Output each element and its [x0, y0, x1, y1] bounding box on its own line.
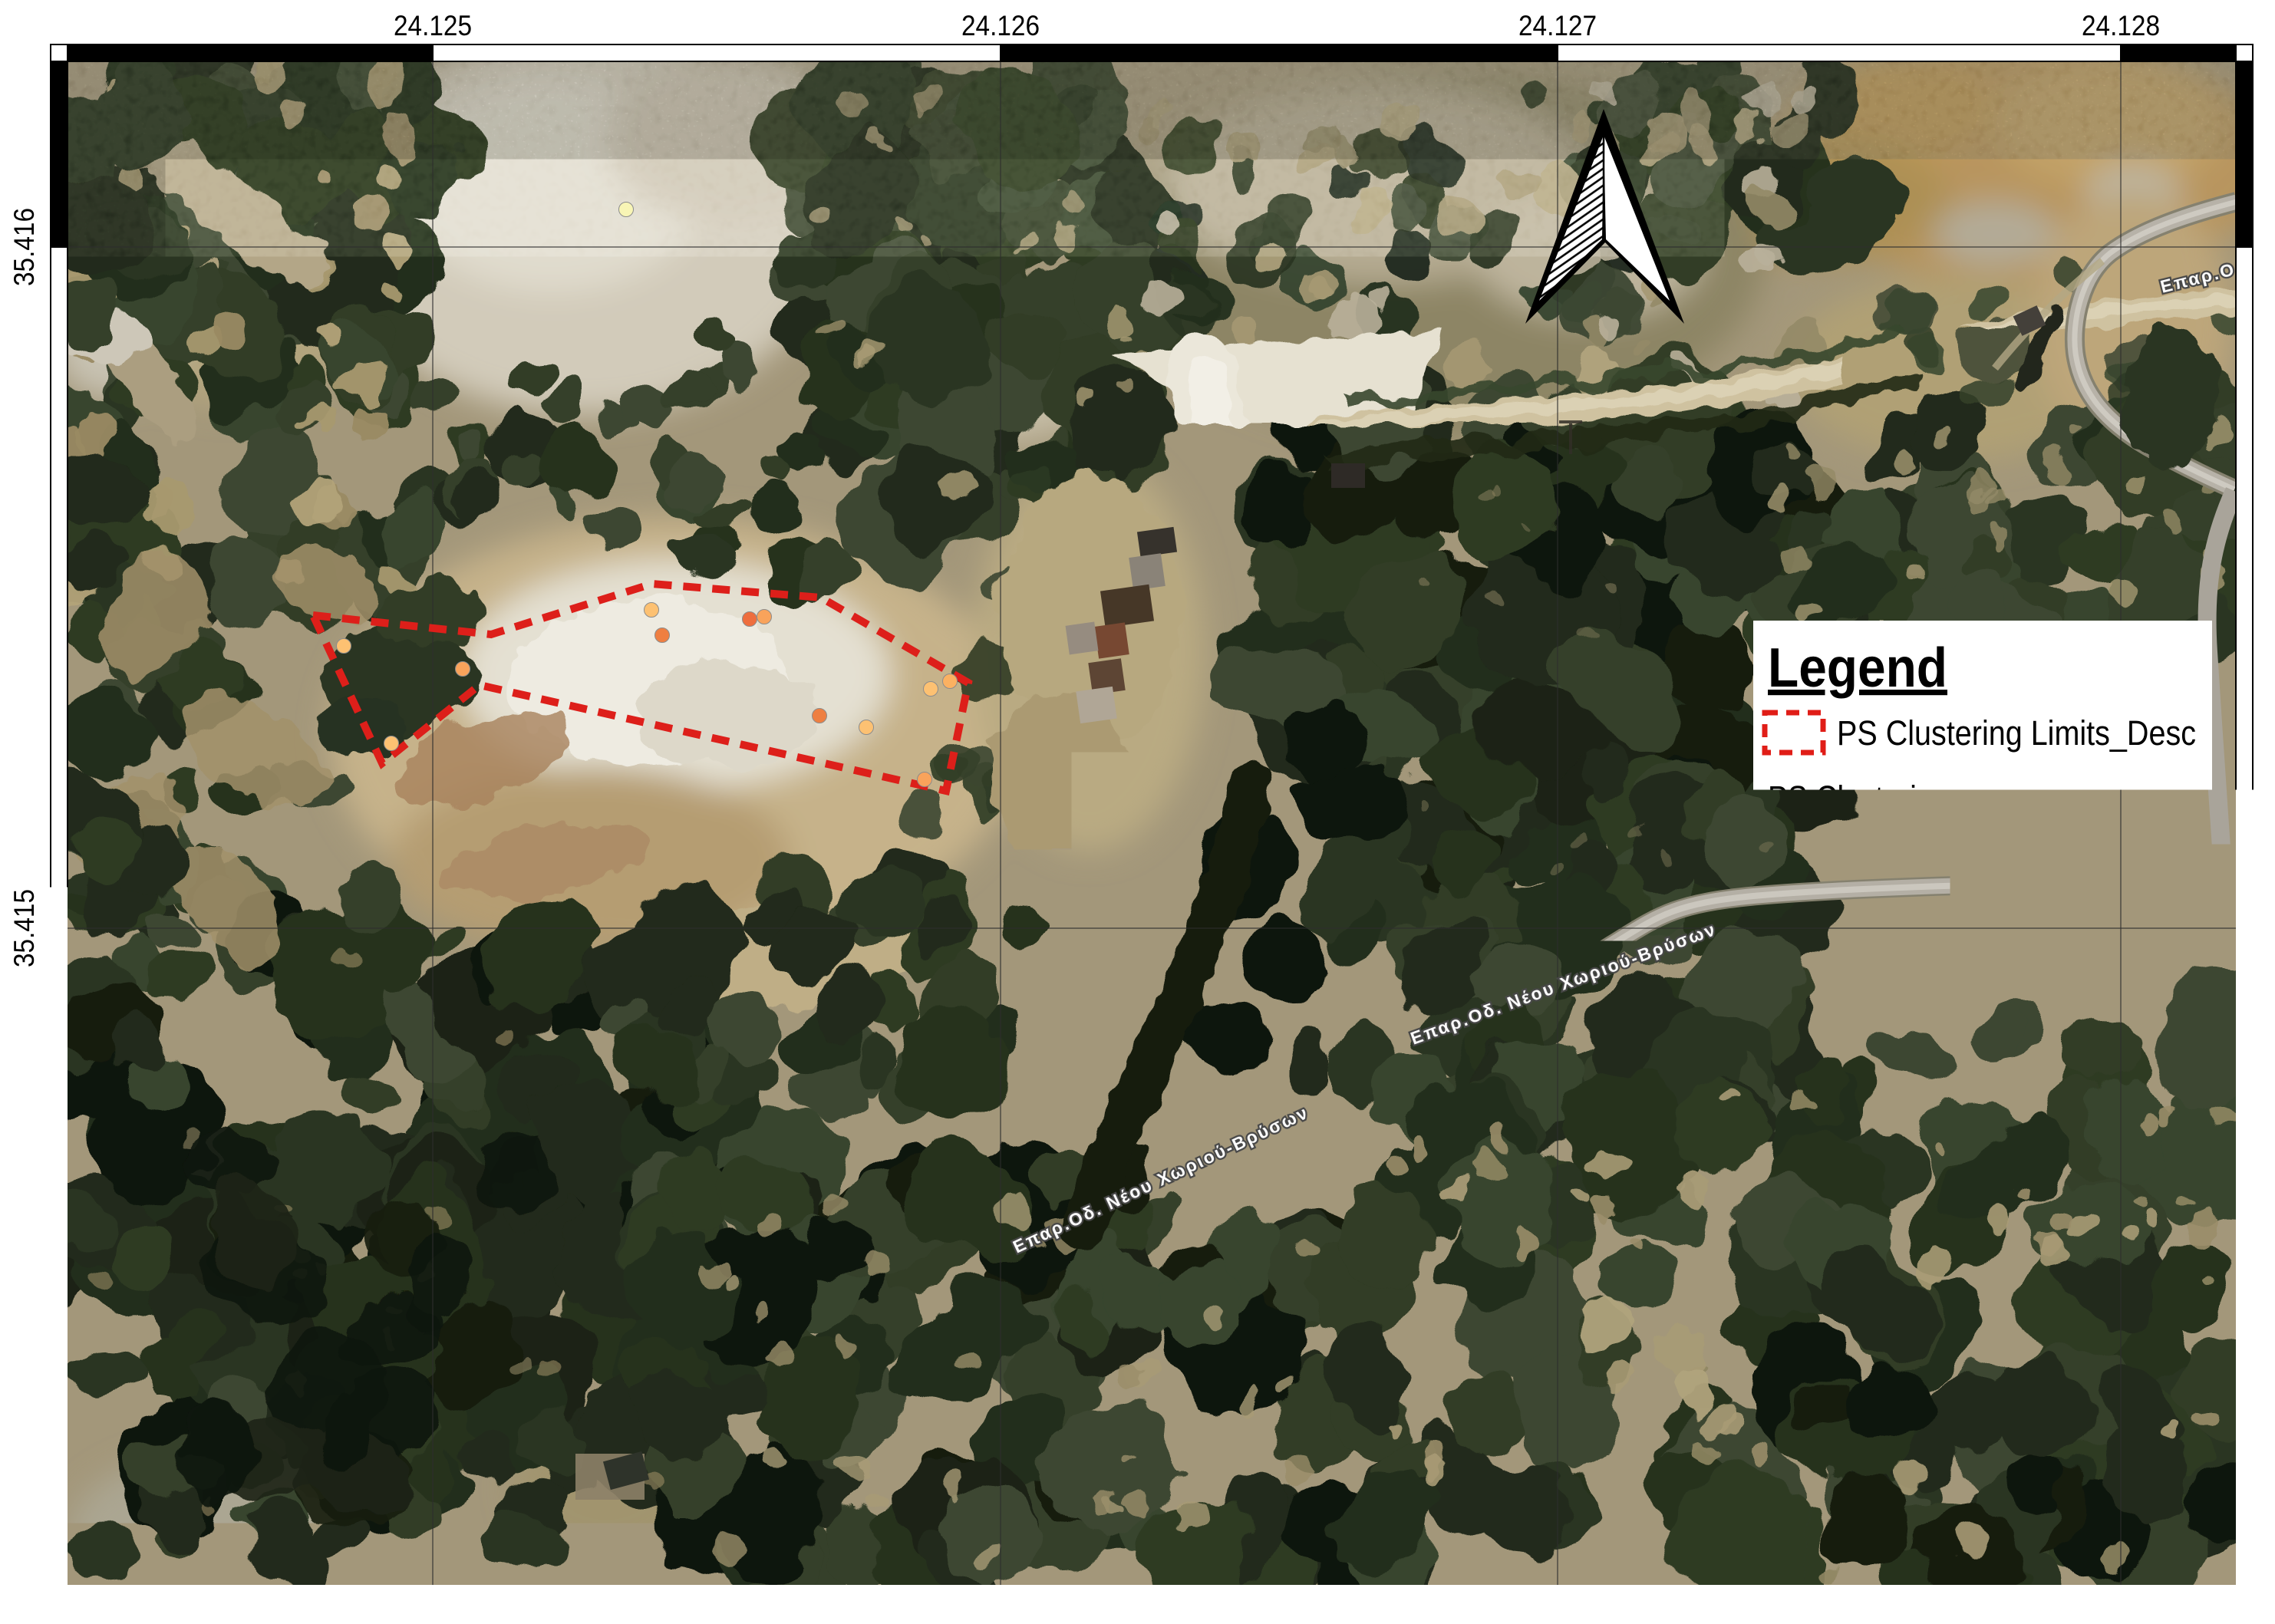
svg-text:35.415: 35.415	[8, 889, 40, 967]
svg-text:4mm/y - 5mm/y: 4mm/y - 5mm/y	[1837, 1316, 2069, 1354]
svg-text:5mm/y - 6mm/y: 5mm/y - 6mm/y	[1837, 1366, 2069, 1404]
svg-text:Basemap: Google Sattelite: Basemap: Google Sattelite	[1757, 1535, 2062, 1569]
svg-text:50: 50	[394, 1476, 428, 1517]
svg-text:35.416: 35.416	[8, 208, 40, 286]
svg-text:−3mm/y - −2mm/y: −3mm/y - −2mm/y	[1837, 969, 2109, 1006]
svg-text:3mm/y - 4mm/y: 3mm/y - 4mm/y	[1837, 1267, 2069, 1304]
svg-text:−1mm/y - 0mm/y: −1mm/y - 0mm/y	[1837, 1069, 2089, 1106]
svg-text:24.125: 24.125	[394, 10, 472, 41]
svg-text:−5mm/y - −4mm/y: −5mm/y - −4mm/y	[1837, 870, 2109, 908]
svg-text:System : WGS 84 (EPSG 3857): System : WGS 84 (EPSG 3857)	[1757, 1477, 2122, 1510]
svg-text:24.126: 24.126	[961, 10, 1040, 41]
svg-text:−4mm/y - −3mm/y: −4mm/y - −3mm/y	[1837, 919, 2109, 957]
svg-text:0: 0	[93, 1476, 110, 1517]
svg-text:Geographic Information: Geographic Information	[1757, 1441, 2032, 1475]
svg-text:PS Clustering: PS Clustering	[1768, 779, 1950, 818]
svg-text:0mm/y - 1mm/y: 0mm/y - 1mm/y	[1837, 1118, 2069, 1155]
svg-text:25: 25	[239, 1476, 272, 1517]
svg-text:24.127: 24.127	[1518, 10, 1597, 41]
svg-text:−2mm/y - −1mm/y: −2mm/y - −1mm/y	[1837, 1019, 2109, 1056]
svg-text:24.128: 24.128	[2082, 10, 2160, 41]
svg-text:−6mm/y - −5mm/y: −6mm/y - −5mm/y	[1837, 820, 2109, 858]
svg-text:2mm/y - 3mm/y: 2mm/y - 3mm/y	[1837, 1217, 2069, 1255]
svg-text:1mm/y - 2mm/y: 1mm/y - 2mm/y	[1837, 1168, 2069, 1205]
svg-text:Legend: Legend	[1768, 637, 1947, 699]
svg-text:m: m	[438, 1476, 463, 1517]
svg-text:PS Clustering Limits_Desc: PS Clustering Limits_Desc	[1837, 713, 2196, 753]
